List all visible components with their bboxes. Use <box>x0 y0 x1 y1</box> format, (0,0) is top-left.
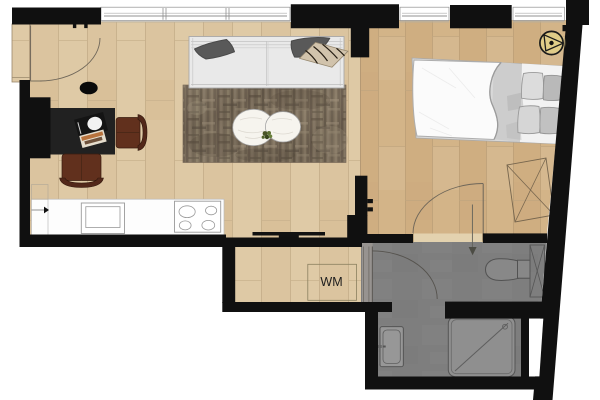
svg-text:WM: WM <box>320 275 342 289</box>
